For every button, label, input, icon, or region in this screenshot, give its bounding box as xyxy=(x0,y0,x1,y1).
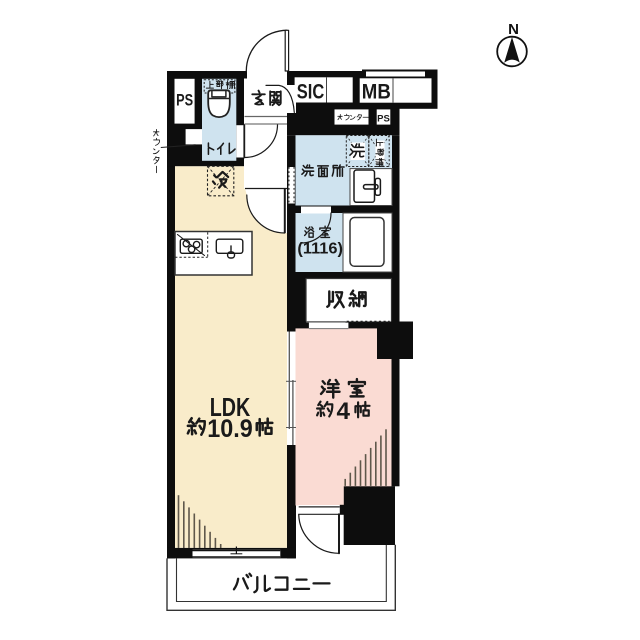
svg-text:10.9: 10.9 xyxy=(207,415,253,443)
svg-text:MB: MB xyxy=(362,80,391,103)
svg-text:PS: PS xyxy=(176,91,193,109)
svg-text:PS: PS xyxy=(377,113,390,124)
svg-text:SIC: SIC xyxy=(297,81,325,104)
svg-text:4: 4 xyxy=(337,398,351,425)
svg-text:N: N xyxy=(508,21,519,38)
svg-text:(1116): (1116) xyxy=(297,241,343,258)
